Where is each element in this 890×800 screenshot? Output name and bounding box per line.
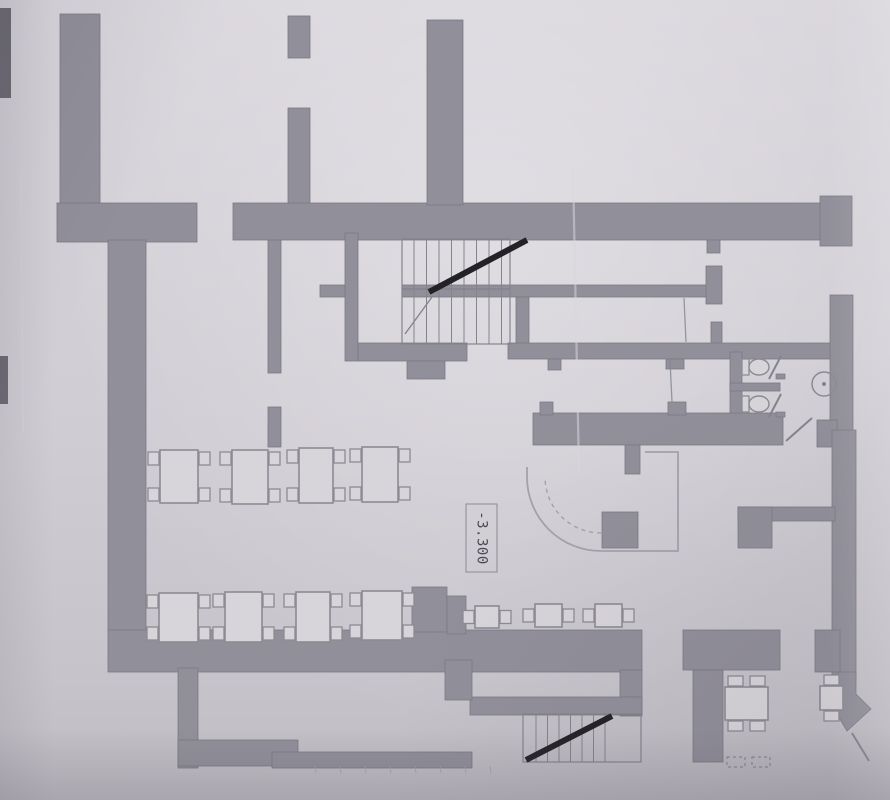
table <box>475 606 499 628</box>
chair <box>331 627 342 640</box>
wall-segment <box>233 203 823 240</box>
wall-segment <box>288 108 310 207</box>
chair <box>728 676 743 686</box>
wall-segment <box>320 285 345 297</box>
chair <box>523 609 534 622</box>
table <box>299 448 333 503</box>
chair <box>284 627 295 640</box>
chair <box>220 489 231 502</box>
wall-segment <box>820 196 852 246</box>
wall-segment <box>668 402 686 415</box>
partition-line <box>684 298 686 342</box>
door-post <box>776 412 785 417</box>
chair <box>399 449 410 462</box>
chair <box>750 721 765 731</box>
door-post <box>776 374 785 379</box>
table <box>362 591 402 640</box>
stair-direction-line <box>526 716 612 760</box>
table <box>362 447 398 502</box>
wall-segment <box>693 670 723 762</box>
wall-segment <box>730 383 780 391</box>
door-leaf-line <box>786 418 812 441</box>
floor-plan-photo: -3.300 <box>0 0 890 800</box>
chair <box>199 452 210 465</box>
chair <box>750 676 765 686</box>
wall-segment <box>288 16 310 58</box>
table-with-chairs <box>350 591 414 640</box>
wall-segment <box>358 343 467 361</box>
chair <box>147 595 158 608</box>
chair <box>213 594 224 607</box>
table <box>725 687 768 720</box>
wall-segment <box>268 407 281 447</box>
chair <box>263 594 274 607</box>
wall-segment <box>57 203 197 242</box>
chair <box>147 627 158 640</box>
table <box>820 686 843 710</box>
chair <box>148 452 159 465</box>
chair <box>350 625 361 638</box>
chair <box>148 488 159 501</box>
chair <box>334 450 345 463</box>
wall-segment <box>268 240 281 373</box>
chair <box>563 609 574 622</box>
wall-segment <box>548 359 561 370</box>
toilet-fixture <box>742 359 769 375</box>
chair <box>199 595 210 608</box>
chair <box>199 627 210 640</box>
wall-segment <box>445 660 472 700</box>
table-with-chairs <box>220 450 280 504</box>
chair <box>287 488 298 501</box>
stair-arrow-line <box>405 297 432 334</box>
chair <box>334 488 345 501</box>
table-with-chairs <box>147 593 210 642</box>
wall-segment <box>706 266 722 304</box>
chair <box>220 452 231 465</box>
table-with-chairs <box>284 592 342 642</box>
floor-plan-canvas: -3.300 <box>0 0 890 800</box>
table <box>595 604 622 627</box>
table-with-chairs <box>148 450 210 503</box>
chair <box>199 488 210 501</box>
chair <box>331 594 342 607</box>
wall-segment <box>711 322 722 345</box>
wall-segment <box>602 512 638 548</box>
chair <box>269 489 280 502</box>
table-with-chairs <box>725 676 768 731</box>
wall-segment <box>272 752 472 768</box>
chair <box>583 609 594 622</box>
wall-segment <box>407 361 445 379</box>
table <box>296 592 330 642</box>
chair-faint <box>752 757 770 767</box>
toilet-tank <box>742 359 749 375</box>
table <box>225 592 262 642</box>
scan-edge-mark <box>0 356 8 404</box>
toilet-bowl <box>749 396 769 412</box>
chair <box>728 721 743 731</box>
toilet-bowl <box>749 359 769 375</box>
wall-segment <box>540 402 553 415</box>
wall-segment <box>683 630 780 670</box>
wall-segment <box>516 297 529 345</box>
table <box>159 593 198 642</box>
wall-segment <box>508 343 832 359</box>
paper-crease <box>20 0 23 432</box>
chair <box>824 675 839 685</box>
wall-segment <box>402 285 712 297</box>
table-with-chairs <box>213 592 274 642</box>
chair-faint <box>727 757 745 767</box>
chair <box>399 487 410 500</box>
table-with-chairs <box>350 447 410 502</box>
table-with-chairs <box>287 448 345 503</box>
chair <box>269 452 280 465</box>
chair <box>623 609 634 622</box>
wall-segment <box>533 413 783 445</box>
wall-segment <box>412 587 447 632</box>
wall-segment <box>108 240 146 632</box>
wall-segment <box>625 445 640 474</box>
chair <box>263 627 274 640</box>
table <box>232 450 268 504</box>
wall-segment <box>345 233 358 361</box>
round-fixture-center-dot <box>822 382 826 386</box>
chair <box>824 711 839 721</box>
elevation-label-text: -3.300 <box>474 511 490 565</box>
bar-counter-inner-dashed <box>545 477 601 533</box>
toilet-fixture <box>742 396 769 412</box>
chair <box>403 593 414 606</box>
table <box>535 604 562 627</box>
wall-segment <box>830 295 853 432</box>
table-with-chairs <box>820 675 843 721</box>
wall-segment <box>738 507 772 548</box>
chair <box>213 627 224 640</box>
stair-direction-line <box>429 240 527 292</box>
wall-segment <box>666 359 684 369</box>
chair <box>284 594 295 607</box>
chair <box>287 450 298 463</box>
table-with-chairs <box>523 604 574 627</box>
chair <box>403 625 414 638</box>
table-with-chairs <box>463 606 511 628</box>
wall-segment <box>427 20 463 205</box>
chair <box>350 593 361 606</box>
wall-segment <box>815 630 840 672</box>
toilet-tank <box>742 396 749 412</box>
elevation-label: -3.300 <box>466 504 497 572</box>
door-leaf-line <box>852 733 869 761</box>
chair <box>500 611 511 624</box>
chair <box>463 611 474 624</box>
chair <box>350 449 361 462</box>
table-with-chairs <box>583 604 634 627</box>
chair <box>350 487 361 500</box>
wall-segment <box>470 697 642 715</box>
dimension-tick <box>490 766 491 773</box>
scan-edge-mark <box>0 8 11 98</box>
table <box>160 450 198 503</box>
wall-segment <box>707 240 720 253</box>
